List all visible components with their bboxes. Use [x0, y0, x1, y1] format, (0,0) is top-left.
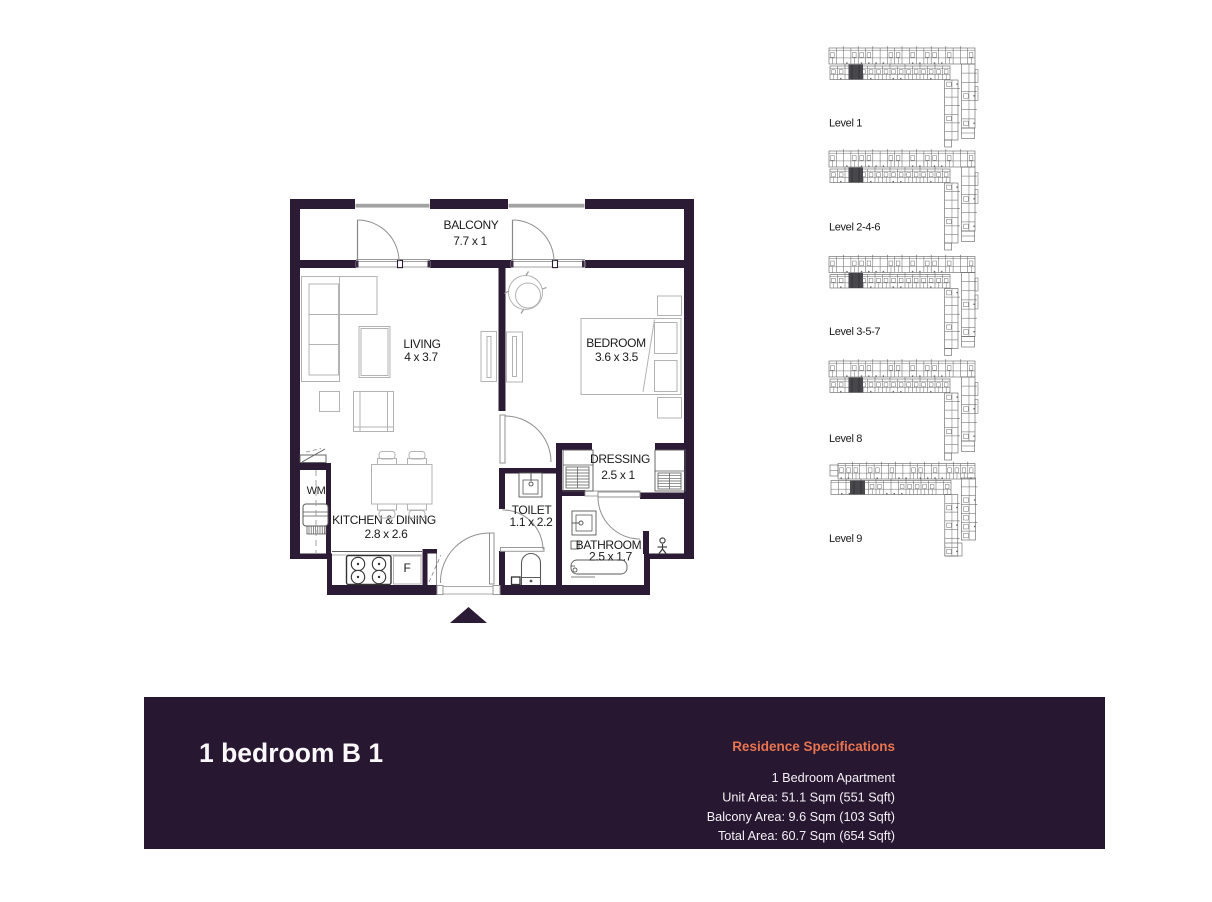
svg-text:Level 3-5-7: Level 3-5-7: [829, 326, 880, 338]
svg-text:DRESSING: DRESSING: [590, 452, 650, 466]
svg-text:Level 8: Level 8: [829, 433, 862, 445]
svg-text:Level 2-4-6: Level 2-4-6: [829, 222, 880, 234]
svg-text:1 bedroom B 1: 1 bedroom B 1: [199, 738, 383, 768]
svg-text:BEDROOM: BEDROOM: [586, 336, 646, 350]
svg-text:2.5 x 1.7: 2.5 x 1.7: [589, 550, 633, 564]
svg-text:2.5 x 1: 2.5 x 1: [601, 468, 635, 482]
svg-text:7.7 x 1: 7.7 x 1: [453, 234, 487, 248]
svg-text:Unit Area: 51.1 Sqm (551 Sqft): Unit Area: 51.1 Sqm (551 Sqft): [722, 791, 895, 805]
svg-text:1.1 x 2.2: 1.1 x 2.2: [510, 515, 554, 529]
svg-text:Residence Specifications: Residence Specifications: [732, 739, 895, 754]
svg-text:Level 9: Level 9: [829, 533, 862, 545]
svg-text:Total Area: 60.7 Sqm (654 Sqft: Total Area: 60.7 Sqm (654 Sqft): [718, 829, 895, 843]
svg-text:3.6 x 3.5: 3.6 x 3.5: [595, 350, 639, 364]
svg-text:LIVING: LIVING: [403, 337, 440, 351]
svg-text:4 x 3.7: 4 x 3.7: [404, 350, 438, 364]
svg-text:2.8 x 2.6: 2.8 x 2.6: [365, 527, 409, 541]
svg-text:1 Bedroom Apartment: 1 Bedroom Apartment: [772, 771, 896, 785]
svg-text:Balcony Area: 9.6 Sqm (103 Sqf: Balcony Area: 9.6 Sqm (103 Sqft): [707, 810, 895, 824]
svg-text:KITCHEN & DINING: KITCHEN & DINING: [332, 513, 436, 527]
svg-text:BALCONY: BALCONY: [444, 218, 499, 232]
svg-text:F: F: [404, 561, 411, 575]
svg-text:Level 1: Level 1: [829, 118, 862, 130]
